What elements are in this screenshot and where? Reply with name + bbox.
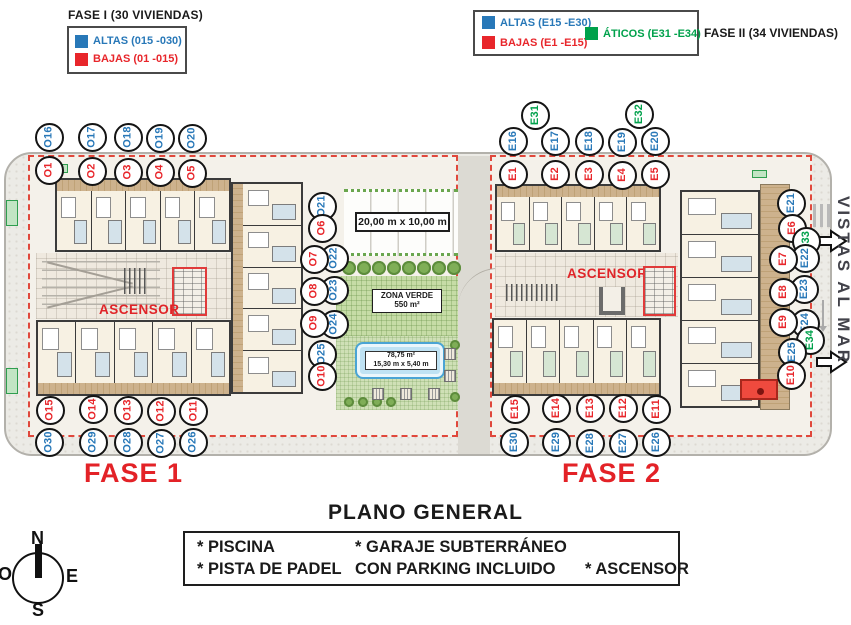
fase1-title: FASE 1 [84,458,183,489]
tree-icon [372,261,386,275]
unit-marker-O6: O6 [308,214,337,243]
sun-lounger [372,388,384,400]
fase2-title: FASE 2 [562,458,661,489]
unit-marker-E1: E1 [499,160,528,189]
tree-icon [447,261,461,275]
bajas-color-swatch [482,36,495,49]
unit-marker-O18: O18 [114,123,143,152]
bike-racks [124,268,148,294]
fase1-legend-box: ALTAS (015 -030) BAJAS (01 -015) [67,26,187,74]
unit-marker-O10: O10 [308,362,337,391]
legend-row-altas-f2: ALTAS (E15 -E30) [482,16,591,29]
flow-arrow [822,300,824,328]
unit-marker-O12: O12 [147,397,176,426]
legend-row-altas: ALTAS (015 -030) [75,35,179,48]
fase2-east-block [680,190,760,408]
unit-marker-O19: O19 [146,124,175,153]
aticos-label-f2: ÁTICOS (E31 -E34) [603,28,701,40]
altas-label-f2: ALTAS (E15 -E30) [500,17,591,29]
unit-marker-O7: O7 [300,245,329,274]
aticos-color-swatch [585,27,598,40]
unit-marker-O11: O11 [179,397,208,426]
tree-icon [402,261,416,275]
zona-verde-label: ZONA VERDE 550 m² [372,289,442,313]
compass-needle [35,544,42,578]
unit-marker-O30: O30 [35,428,64,457]
terrace-deck [494,383,659,394]
unit-marker-E15: E15 [501,395,530,424]
elevator-shaft-icon [599,287,625,315]
fase1-south-block [36,320,231,396]
unit-marker-O5: O5 [178,159,207,188]
unit-marker-O14: O14 [79,395,108,424]
unit-marker-O13: O13 [114,396,143,425]
tree-icon [450,392,460,402]
bike-racks [506,284,561,301]
site-plan-page: FASE I (30 VIVIENDAS) ALTAS (015 -030) B… [0,0,851,625]
unit-marker-E4: E4 [608,161,637,190]
bajas-color-swatch [75,53,88,66]
parking-marks [813,204,831,227]
unit-marker-O17: O17 [78,123,107,152]
transformer-station [740,379,778,400]
unit-marker-E16: E16 [499,127,528,156]
unit-marker-E27: E27 [609,429,638,458]
utility-box [6,368,18,394]
unit-marker-E32: E32 [625,100,654,129]
unit-marker-O15: O15 [36,396,65,425]
compass-east: E [66,566,78,587]
unit-marker-E10: E10 [777,361,806,390]
unit-marker-O3: O3 [114,158,143,187]
sun-lounger [400,388,412,400]
fase2-north-block [495,184,661,252]
legend-row-bajas-f2: BAJAS (E1 -E15) [482,36,587,49]
elevator-fase2 [643,266,676,316]
unit-marker-O1: O1 [35,156,64,185]
compass-north: N [31,528,44,549]
altas-color-swatch [482,16,495,29]
unit-marker-E30: E30 [500,428,529,457]
legend-row-bajas: BAJAS (01 -015) [75,53,179,66]
pool-dimensions-label: 78,75 m² 15,30 m x 5,40 m [365,351,437,370]
unit-marker-E7: E7 [769,245,798,274]
compass-south: S [32,600,44,621]
feature-ascensor: * ASCENSOR [585,560,689,579]
unit-marker-O4: O4 [146,158,175,187]
fase2-south-block [492,318,661,396]
ascensor-label-fase2: ASCENSOR [567,266,643,281]
unit-marker-E11: E11 [642,395,671,424]
tree-icon [386,397,396,407]
unit-marker-O2: O2 [78,157,107,186]
unit-marker-E12: E12 [609,394,638,423]
tree-icon [357,261,371,275]
unit-marker-E18: E18 [575,127,604,156]
fase1-north-block [55,178,231,252]
padel-dimensions-label: 20,00 m x 10,00 m [355,212,450,232]
unit-marker-O27: O27 [147,429,176,458]
terrace-deck [497,186,659,197]
unit-marker-E3: E3 [575,160,604,189]
unit-marker-O9: O9 [300,309,329,338]
unit-marker-O16: O16 [35,123,64,152]
unit-marker-O29: O29 [79,428,108,457]
unit-marker-E9: E9 [769,308,798,337]
unit-marker-O28: O28 [114,428,143,457]
unit-marker-O26: O26 [179,428,208,457]
tree-icon [387,261,401,275]
unit-marker-E14: E14 [542,394,571,423]
sun-lounger [444,370,456,382]
tree-icon [432,261,446,275]
utility-box [6,200,18,226]
unit-marker-E5: E5 [641,160,670,189]
vistas-al-mar-label: VISTAS AL MAR [833,196,851,402]
sun-lounger [428,388,440,400]
page-title: PLANO GENERAL [0,501,851,525]
tree-icon [344,397,354,407]
features-box: * PISCINA * GARAJE SUBTERRÁNEO * PISTA D… [183,531,680,586]
feature-piscina: * PISCINA [197,538,355,557]
sun-lounger [444,348,456,360]
feature-padel: * PISTA DE PADEL [197,560,355,579]
unit-marker-E26: E26 [642,428,671,457]
unit-marker-E20: E20 [641,127,670,156]
fase1-legend-title: FASE I (30 VIVIENDAS) [68,8,203,22]
unit-marker-E19: E19 [608,128,637,157]
unit-marker-O20: O20 [178,124,207,153]
feature-garaje: * GARAJE SUBTERRÁNEO [355,538,585,557]
fase1-east-block [231,182,303,394]
terrace-deck [233,184,243,392]
ascensor-label-fase1: ASCENSOR [99,302,175,317]
feature-parking: CON PARKING INCLUIDO [355,560,585,579]
utility-box [752,170,767,178]
tree-icon [358,397,368,407]
tree-icon [417,261,431,275]
unit-marker-E2: E2 [541,160,570,189]
terrace-deck [38,383,229,394]
unit-marker-E28: E28 [576,429,605,458]
compass-west: O [0,564,12,585]
bajas-label: BAJAS (01 -015) [93,53,178,65]
unit-marker-E8: E8 [769,278,798,307]
unit-marker-E13: E13 [576,394,605,423]
altas-color-swatch [75,35,88,48]
legend-row-aticos-f2: ÁTICOS (E31 -E34) [585,27,701,40]
unit-marker-E31: E31 [521,101,550,130]
altas-label: ALTAS (015 -030) [93,35,182,47]
unit-marker-E29: E29 [542,428,571,457]
unit-marker-O8: O8 [300,277,329,306]
fase2-legend-title: FASE II (34 VIVIENDAS) [704,26,838,40]
unit-marker-E17: E17 [541,127,570,156]
bajas-label-f2: BAJAS (E1 -E15) [500,37,587,49]
